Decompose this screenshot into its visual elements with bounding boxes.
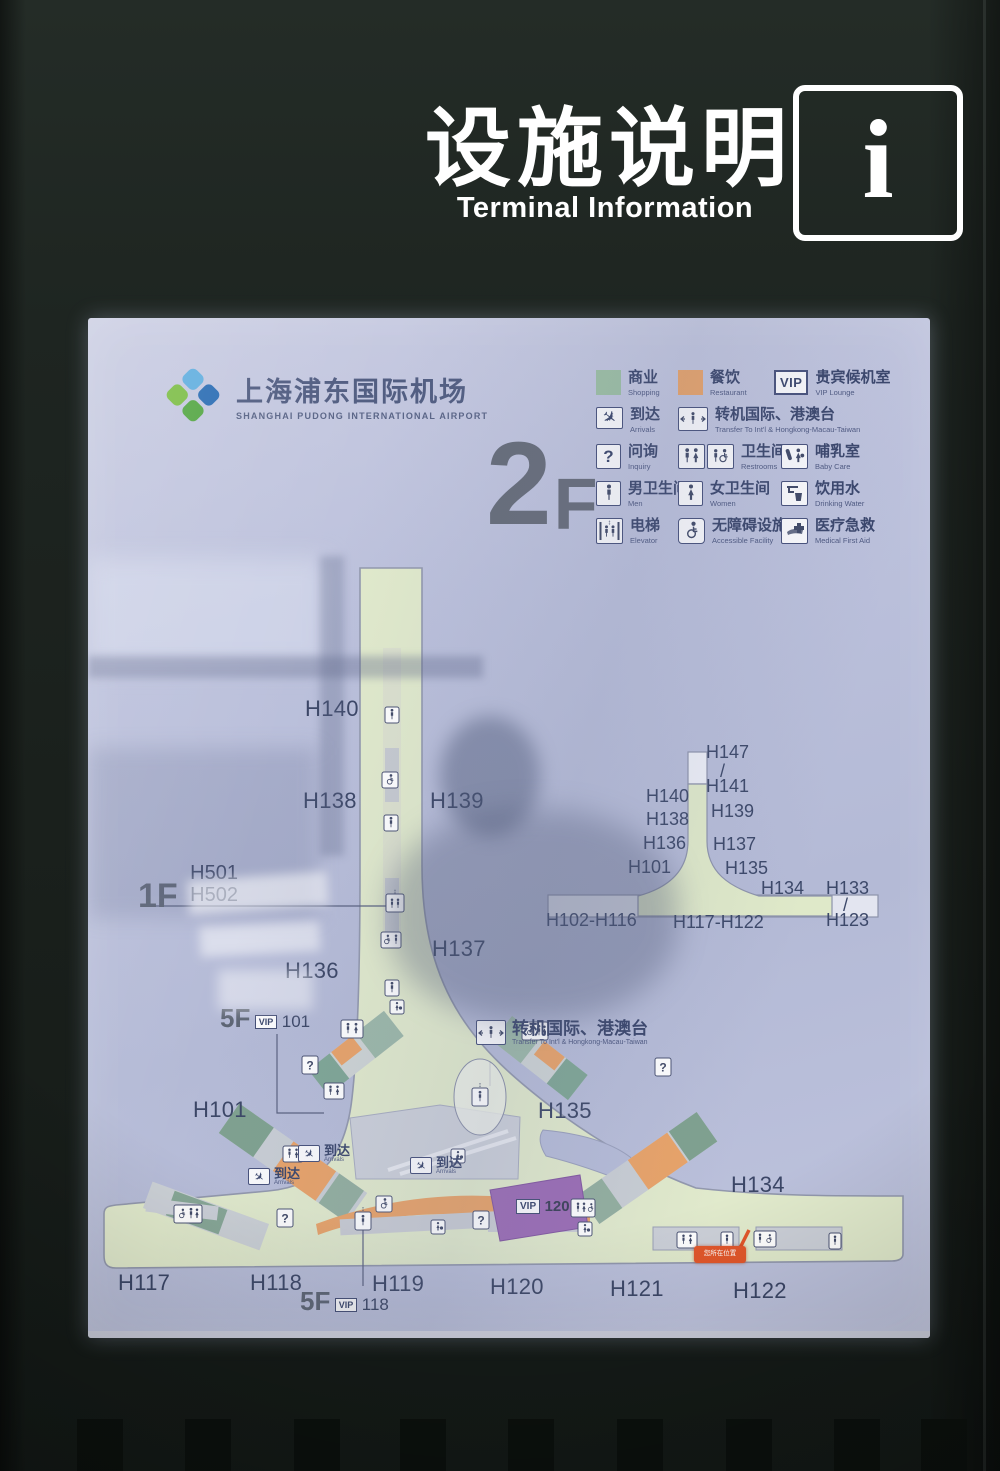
level-5f-118-note: 5F VIP 118 — [300, 1286, 389, 1317]
legend-elevator: ↕ 电梯Elevator — [596, 518, 660, 545]
legend-arrivals: ✈ 到达Arrivals — [596, 407, 660, 434]
terminal-information-kiosk: 设施说明 Terminal Information i — [0, 0, 1000, 1471]
legend-medical: 医疗急救Medical First Aid — [781, 518, 875, 545]
wheelchair-icon — [678, 518, 705, 544]
vip-icon: VIP — [774, 370, 808, 395]
drinking-water-icon — [781, 481, 808, 506]
gate-label: H120 — [490, 1274, 544, 1300]
map-legend: 商业Shopping 餐饮Restaurant VIP 贵宾候机室VIP Lou… — [596, 370, 906, 560]
airport-name-en: SHANGHAI PUDONG INTERNATIONAL AIRPORT — [236, 411, 488, 421]
information-icon: i — [793, 85, 963, 241]
medical-icon — [781, 518, 808, 544]
vent — [400, 1419, 446, 1471]
women-icon — [678, 481, 703, 506]
svg-text:↕: ↕ — [478, 1082, 482, 1089]
arrivals-plane-icon: ✈ — [596, 407, 623, 429]
svg-text:↕: ↕ — [393, 889, 397, 896]
gate-label: H122 — [733, 1278, 787, 1304]
legend-restaurant: 餐饮Restaurant — [678, 370, 747, 397]
gate-label: H139 — [430, 788, 484, 814]
sign-title-zh: 设施说明 — [425, 78, 785, 203]
svg-text:?: ? — [659, 1061, 666, 1075]
legend-inquiry: ? 问询Inquiry — [596, 444, 658, 471]
transfer-counter-note: 转机国际、港澳台 Transfer To Int'l & Hongkong-Ma… — [476, 1020, 648, 1046]
svg-text:?: ? — [477, 1214, 484, 1228]
legend-baby-care: 哺乳室Baby Care — [781, 444, 860, 471]
gate-label: H137 — [432, 936, 486, 962]
arrivals-plane-icon: ✈ — [248, 1168, 270, 1185]
inquiry-icon: ? — [596, 444, 621, 469]
gate-label: H117 — [118, 1270, 170, 1296]
legend-vip-lounge: VIP 贵宾候机室VIP Lounge — [774, 370, 890, 397]
arrivals-note: ✈ 到达Arrivals — [248, 1167, 300, 1186]
arrivals-plane-icon: ✈ — [298, 1145, 320, 1162]
legend-transfer: 转机国际、港澳台Transfer To Int'l & Hongkong-Mac… — [678, 407, 860, 434]
floor-label-2f: 2 F — [486, 436, 598, 533]
gate-label: H135 — [538, 1098, 592, 1124]
legend-men: 男卫生间Men — [596, 481, 688, 508]
overview-inset-map: H147 / H141 H140 H139 H138 H136 H137 H10… — [543, 742, 888, 947]
restroom-icon — [678, 444, 705, 469]
men-icon — [596, 481, 621, 506]
gate-label: H101 — [193, 1097, 247, 1123]
legend-women: 女卫生间Women — [678, 481, 770, 508]
airport-name-zh: 上海浦东国际机场 — [236, 370, 488, 409]
vent — [77, 1419, 123, 1471]
gate-label: H118 — [250, 1270, 302, 1296]
vent — [834, 1419, 880, 1471]
sign-title-en: Terminal Information — [425, 192, 785, 225]
panel-bezel — [88, 1331, 930, 1338]
gate-label: H140 — [305, 696, 359, 722]
legend-restrooms: 卫生间Restrooms — [678, 444, 786, 471]
airport-logo-icon — [164, 366, 222, 424]
level-1f-note: 1F H501 H502 — [138, 862, 238, 916]
arrivals-note: ✈ 到达Arrivals — [298, 1144, 350, 1163]
vent — [508, 1419, 554, 1471]
gate-label: H121 — [610, 1276, 664, 1302]
restaurant-swatch — [678, 370, 703, 395]
vent — [294, 1419, 340, 1471]
arrivals-note: ✈ 到达Arrivals — [410, 1156, 462, 1175]
baby-care-icon — [781, 444, 808, 469]
accessible-restroom-icon — [707, 444, 734, 469]
elevator-icon: ↕ — [596, 518, 623, 544]
gate-label: H136 — [285, 958, 339, 984]
svg-text:↕: ↕ — [361, 1206, 365, 1213]
level-5f-101-note: 5F VIP 101 — [220, 1003, 310, 1034]
vip-120-label: VIP 120 — [516, 1198, 570, 1216]
vent — [921, 1419, 967, 1471]
gate-label: H134 — [731, 1172, 785, 1198]
airport-logo: 上海浦东国际机场 SHANGHAI PUDONG INTERNATIONAL A… — [164, 366, 488, 424]
transfer-icon — [678, 407, 708, 431]
legend-accessible: 无障碍设施Accessible Facility — [678, 518, 787, 545]
svg-text:?: ? — [281, 1212, 288, 1226]
kiosk-edge-highlight — [983, 0, 986, 1471]
terminal-map-panel: ↕ ? ? ↕ ? ? ↕ — [88, 318, 930, 1338]
legend-shopping: 商业Shopping — [596, 370, 660, 397]
vent — [726, 1419, 772, 1471]
you-are-here-marker: 您所在位置 — [694, 1246, 746, 1263]
transfer-icon — [476, 1020, 506, 1045]
vent — [617, 1419, 663, 1471]
gate-label: H138 — [303, 788, 357, 814]
legend-drinking-water: 饮用水Drinking Water — [781, 481, 864, 508]
arrivals-plane-icon: ✈ — [410, 1157, 432, 1174]
vent — [185, 1419, 231, 1471]
svg-text:↕: ↕ — [608, 520, 612, 527]
kiosk-left-shadow — [0, 0, 26, 1471]
svg-text:?: ? — [306, 1059, 313, 1073]
shopping-swatch — [596, 370, 621, 395]
